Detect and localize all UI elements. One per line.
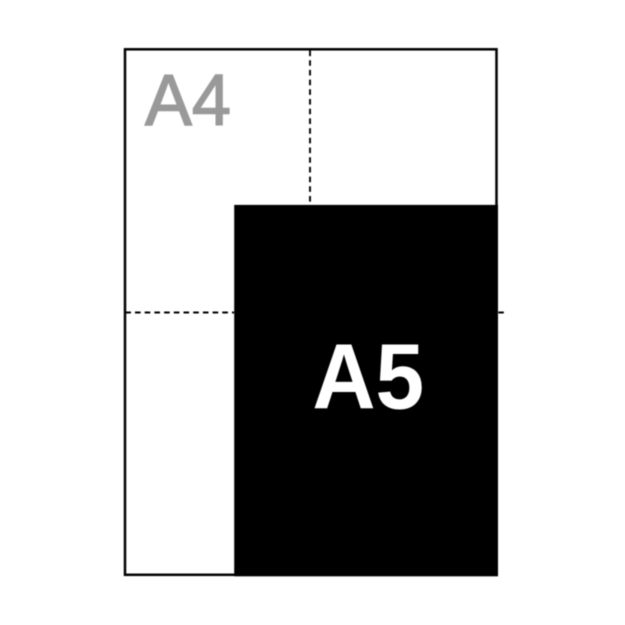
svg-text:A4: A4 [145, 61, 231, 141]
svg-text:A5: A5 [312, 324, 424, 428]
